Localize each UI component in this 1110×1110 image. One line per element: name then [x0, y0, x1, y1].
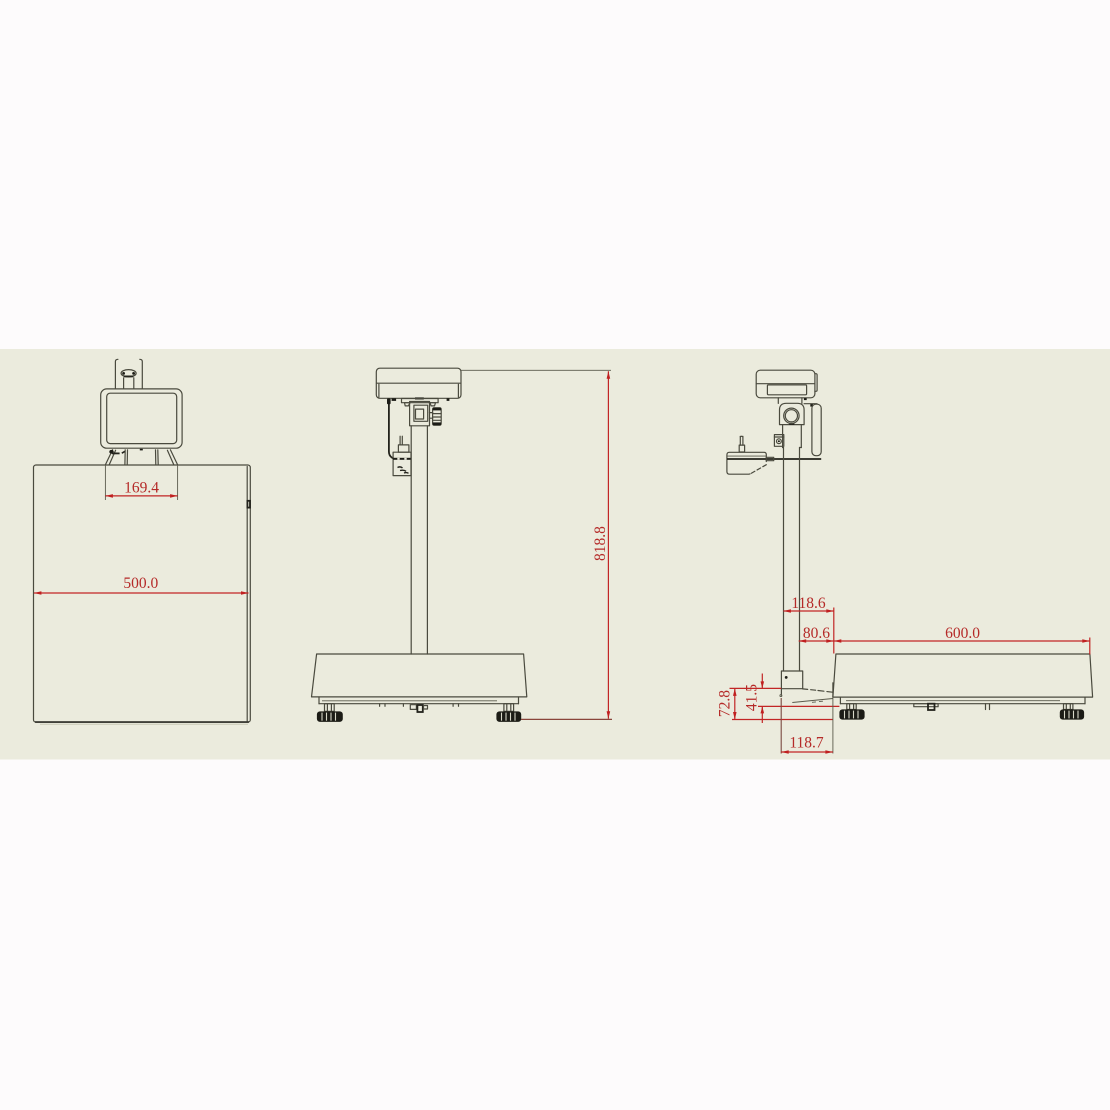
svg-text:41.5: 41.5: [744, 684, 761, 711]
svg-text:72.8: 72.8: [717, 690, 734, 717]
svg-text:80.6: 80.6: [803, 625, 830, 642]
svg-text:118.6: 118.6: [791, 595, 826, 612]
svg-text:600.0: 600.0: [945, 625, 980, 642]
svg-text:818.8: 818.8: [592, 526, 609, 561]
svg-text:169.4: 169.4: [124, 480, 159, 497]
svg-text:500.0: 500.0: [123, 575, 158, 592]
svg-text:118.7: 118.7: [789, 735, 824, 752]
